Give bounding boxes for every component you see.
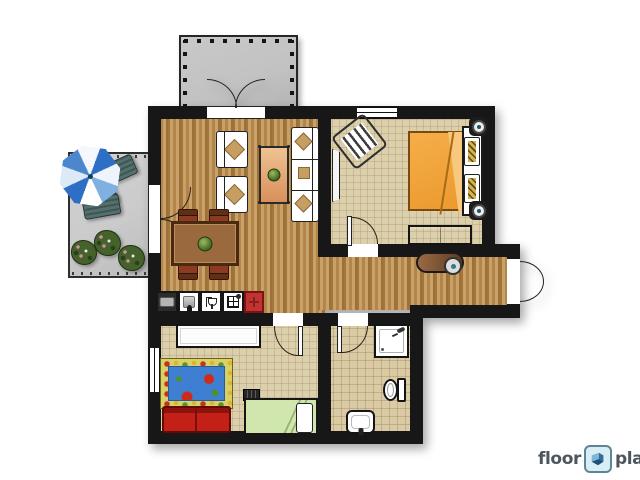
- toilet-tank: [397, 378, 406, 402]
- glass-icon: [208, 298, 217, 306]
- logo-word-floor: floor: [538, 449, 581, 469]
- bathroom-door-gap: [338, 313, 368, 326]
- kids-red-sofa: [162, 406, 231, 433]
- kids-sideboard: [176, 324, 261, 348]
- floorplanner-logo: floor planner: [538, 445, 640, 473]
- bedside-speaker: [469, 201, 488, 220]
- microwave-icon: [160, 297, 175, 307]
- play-rug: [160, 358, 233, 409]
- hall-bench: [416, 252, 464, 273]
- stove-knob: [236, 294, 241, 299]
- three-seat-sofa: [291, 127, 319, 222]
- kids-bed-pillow: [296, 403, 313, 433]
- plant: [268, 169, 281, 182]
- logo-cube-glyph: [589, 450, 607, 468]
- wall-bathroom-right: [410, 313, 423, 444]
- front-door-gap: [507, 259, 520, 304]
- armchair: [216, 131, 248, 168]
- balcony-door-arc-right: [235, 79, 265, 108]
- wall-living-bedroom: [318, 106, 331, 257]
- kitchen-microwave-unit: [156, 291, 178, 313]
- plant: [198, 236, 213, 251]
- faucet-icon: [187, 305, 192, 312]
- coffee-table: [259, 146, 289, 204]
- bed-pillow: [464, 137, 480, 166]
- sofa-cushion: [294, 194, 312, 212]
- balcony-door-arc-left: [207, 79, 237, 108]
- bed-pillow: [464, 174, 480, 203]
- wall-kids-bath-divider: [318, 313, 331, 444]
- kitchen-sink-unit: [178, 291, 200, 313]
- sofa-cushion: [298, 167, 310, 179]
- bedroom-dresser: [408, 225, 472, 245]
- wall-top-bedroom: [318, 106, 495, 119]
- armchair-cushion: [224, 184, 245, 205]
- bathroom-sink: [346, 410, 375, 434]
- floorplanner-mark-icon: [584, 445, 612, 473]
- armchair: [216, 176, 248, 213]
- kitchen-dishwasher-unit: [200, 291, 222, 313]
- sofa-cushion: [294, 132, 312, 150]
- bedroom-door-gap: [348, 244, 378, 257]
- armchair-cushion: [224, 139, 245, 160]
- shower-drain: [381, 348, 384, 351]
- shower-head-icon: [392, 328, 405, 336]
- wall-hallway-bottom: [410, 305, 520, 318]
- kitchen-red-unit: [244, 291, 264, 313]
- kids-door-gap: [273, 313, 303, 326]
- unit-icon: [249, 297, 259, 307]
- bench-cushion: [444, 257, 462, 275]
- play-rug-center: [168, 366, 225, 401]
- kids-door-leaf: [298, 326, 303, 356]
- kids-bed: [244, 398, 318, 435]
- bedside-speaker: [469, 117, 488, 136]
- bed-blanket-edge: [439, 131, 454, 214]
- floorplan-canvas: floor planner: [0, 0, 640, 480]
- front-door-arc: [520, 261, 544, 302]
- dining-chair: [178, 264, 198, 280]
- apartment: [0, 0, 640, 480]
- toilet-bowl: [383, 379, 398, 401]
- patio-french-doors: [148, 185, 161, 253]
- dining-chair: [209, 264, 229, 280]
- wardrobe: [332, 149, 340, 202]
- kitchen-stove-unit: [222, 291, 244, 313]
- logo-word-planner: planner: [615, 449, 640, 469]
- double-bed: [408, 131, 466, 211]
- dining-table: [171, 221, 239, 266]
- shower: [374, 324, 409, 358]
